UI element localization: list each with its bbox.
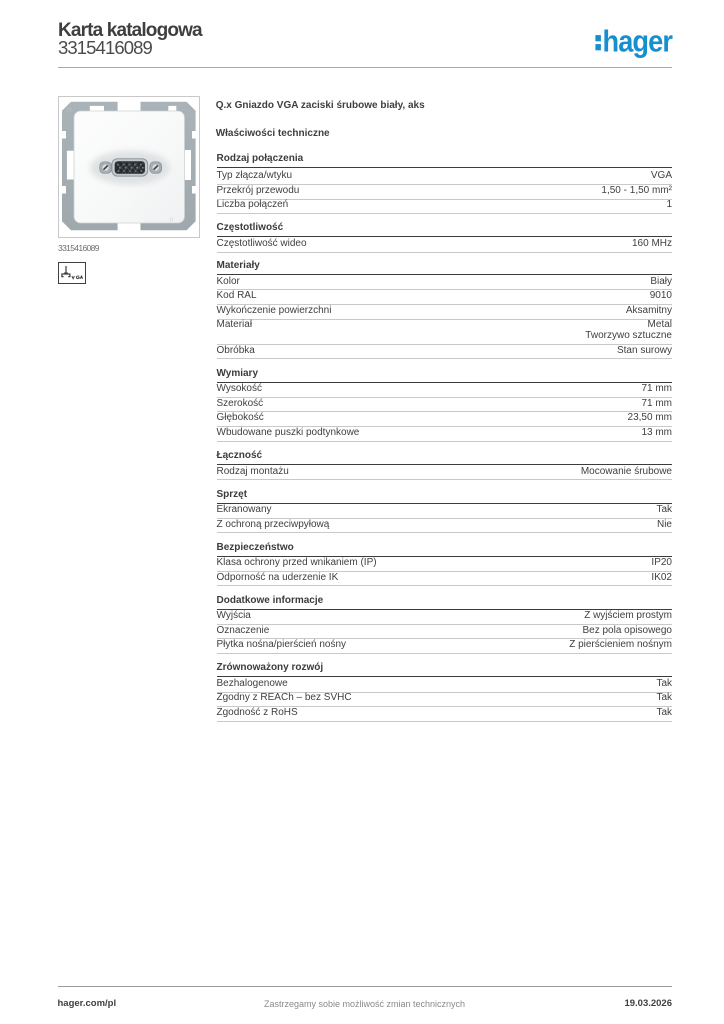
svg-text:II: II [170, 218, 174, 224]
svg-text:Π·: Π· [67, 108, 73, 114]
svg-text:hager: hager [603, 27, 674, 59]
